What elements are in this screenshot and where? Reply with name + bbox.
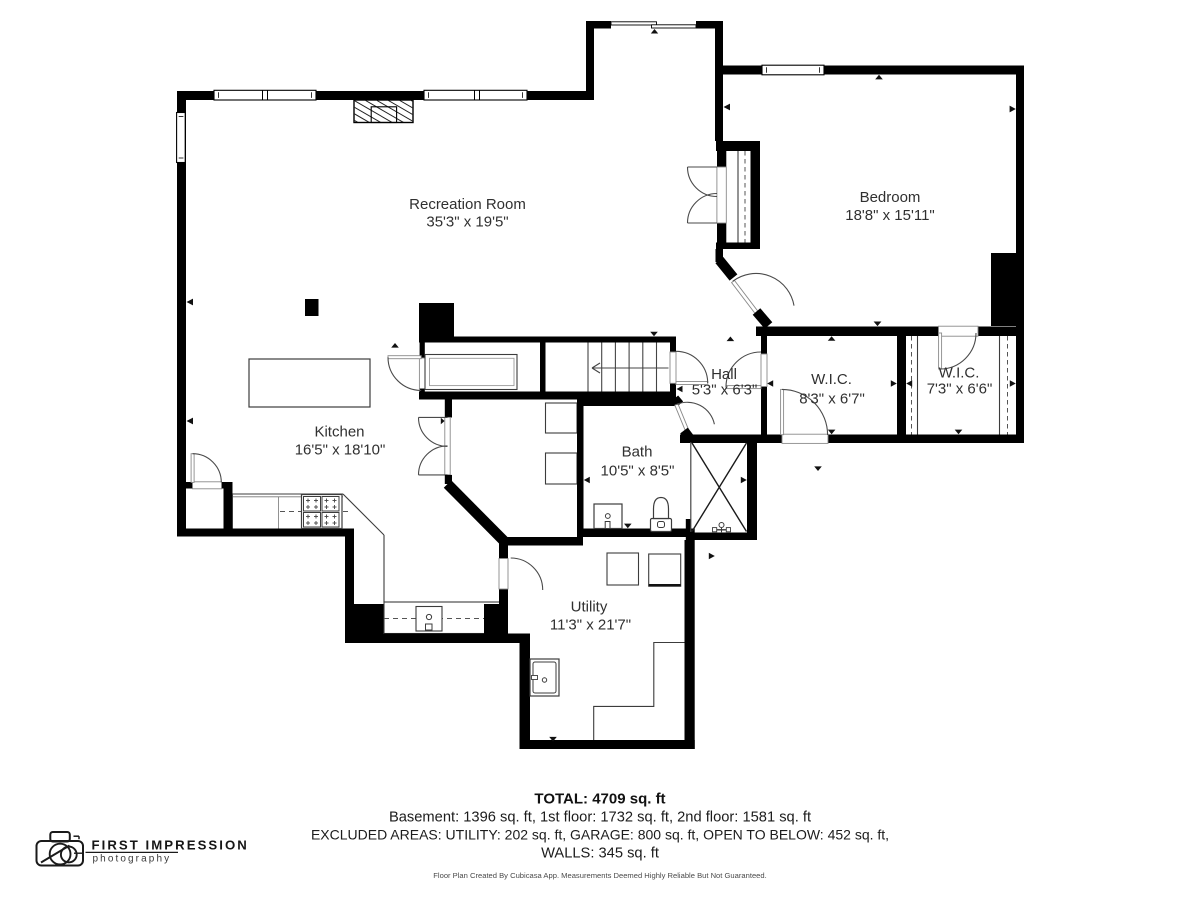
svg-text:EXCLUDED AREAS: UTILITY: 202 s: EXCLUDED AREAS: UTILITY: 202 sq. ft, GAR…	[311, 827, 889, 843]
svg-text:10'5" x 8'5": 10'5" x 8'5"	[601, 463, 675, 480]
svg-text:16'5" x 18'10": 16'5" x 18'10"	[295, 442, 386, 459]
svg-text:WALLS: 345 sq. ft: WALLS: 345 sq. ft	[541, 846, 659, 862]
svg-text:11'3" x 21'7": 11'3" x 21'7"	[550, 617, 631, 634]
svg-text:Recreation Room: Recreation Room	[409, 196, 526, 213]
svg-text:Basement: 1396 sq. ft, 1st flo: Basement: 1396 sq. ft, 1st floor: 1732 s…	[389, 810, 811, 826]
svg-text:7'3" x 6'6": 7'3" x 6'6"	[927, 381, 993, 398]
svg-text:photography: photography	[93, 854, 172, 865]
svg-text:W.I.C.: W.I.C.	[811, 371, 852, 388]
svg-text:Utility: Utility	[571, 599, 608, 616]
svg-text:Kitchen: Kitchen	[314, 424, 364, 441]
svg-text:Bedroom: Bedroom	[860, 189, 921, 206]
svg-text:18'8" x 15'11": 18'8" x 15'11"	[845, 207, 935, 224]
svg-text:TOTAL: 4709 sq. ft: TOTAL: 4709 sq. ft	[534, 791, 665, 808]
svg-text:Bath: Bath	[622, 444, 653, 461]
svg-text:Floor Plan Created By Cubicasa: Floor Plan Created By Cubicasa App. Meas…	[433, 871, 766, 880]
svg-text:FIRST IMPRESSION: FIRST IMPRESSION	[92, 838, 249, 853]
svg-text:Hall: Hall	[711, 366, 737, 383]
svg-text:W.I.C.: W.I.C.	[939, 365, 980, 382]
svg-text:35'3" x 19'5": 35'3" x 19'5"	[426, 214, 508, 231]
svg-text:8'3" x 6'7": 8'3" x 6'7"	[799, 391, 865, 408]
